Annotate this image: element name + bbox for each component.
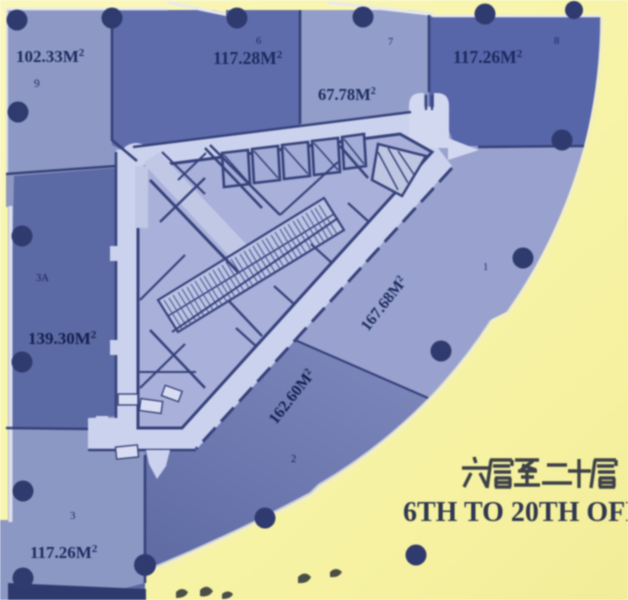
svg-text:8: 8 — [554, 36, 559, 47]
svg-text:6: 6 — [256, 36, 261, 47]
svg-text:3A: 3A — [36, 273, 49, 284]
svg-text:117.28M2: 117.28M2 — [213, 48, 283, 68]
svg-text:1: 1 — [483, 262, 488, 273]
svg-text:102.33M2: 102.33M2 — [16, 47, 85, 66]
svg-text:139.30M2: 139.30M2 — [28, 329, 97, 348]
svg-text:7: 7 — [388, 37, 393, 48]
svg-text:67.78M2: 67.78M2 — [318, 85, 376, 104]
svg-text:9: 9 — [34, 78, 40, 90]
svg-text:2: 2 — [291, 454, 296, 465]
svg-text:6TH TO 20TH OFFICE: 6TH TO 20TH OFFICE — [403, 497, 628, 528]
svg-text:3: 3 — [70, 510, 76, 522]
svg-text:117.26M2: 117.26M2 — [30, 543, 98, 562]
svg-text:117.26M2: 117.26M2 — [453, 47, 523, 67]
